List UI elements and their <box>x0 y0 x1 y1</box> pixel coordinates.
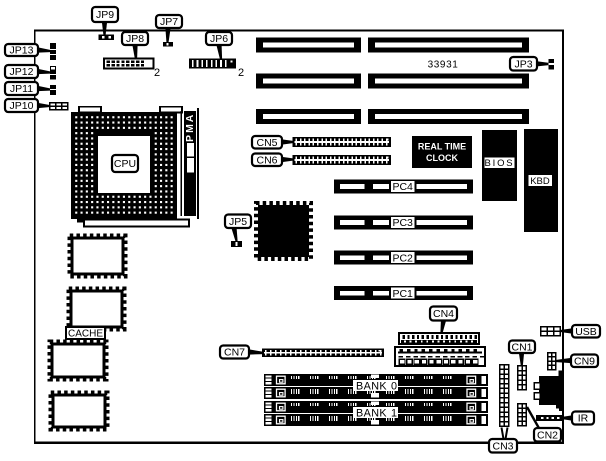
svg-text:KBD: KBD <box>530 176 550 187</box>
svg-text:CN5: CN5 <box>256 137 277 149</box>
svg-text:2: 2 <box>238 67 244 79</box>
svg-text:0: 0 <box>391 381 397 393</box>
svg-text:PC2: PC2 <box>392 252 413 264</box>
svg-text:M: M <box>184 124 196 133</box>
svg-text:CPU: CPU <box>114 158 136 170</box>
svg-text:PC4: PC4 <box>392 181 413 193</box>
svg-text:USB: USB <box>575 326 597 338</box>
svg-text:REAL TIME: REAL TIME <box>418 142 466 152</box>
svg-text:JP7: JP7 <box>160 16 178 28</box>
svg-text:PC1: PC1 <box>392 288 413 300</box>
svg-text:JP5: JP5 <box>229 216 247 228</box>
svg-text:CN4: CN4 <box>433 308 454 320</box>
svg-text:BIOS: BIOS <box>485 158 515 169</box>
svg-text:CACHE: CACHE <box>68 329 103 340</box>
svg-text:CN2: CN2 <box>537 429 558 441</box>
svg-text:BANK: BANK <box>356 408 387 420</box>
svg-text:CLOCK: CLOCK <box>426 153 458 163</box>
svg-text:JP9: JP9 <box>96 9 114 21</box>
svg-text:2: 2 <box>154 67 160 79</box>
svg-text:JP13: JP13 <box>10 45 34 57</box>
svg-text:BANK: BANK <box>356 381 387 393</box>
svg-text:33931: 33931 <box>428 59 459 70</box>
svg-text:CN3: CN3 <box>492 440 513 452</box>
svg-text:JP11: JP11 <box>10 83 33 95</box>
svg-text:CN1: CN1 <box>511 341 532 353</box>
svg-text:JP12: JP12 <box>10 66 34 78</box>
svg-text:IR: IR <box>578 413 589 425</box>
svg-text:CN9: CN9 <box>574 355 595 367</box>
svg-text:JP3: JP3 <box>514 58 532 70</box>
svg-text:JP6: JP6 <box>210 33 228 45</box>
svg-text:CN6: CN6 <box>256 154 277 166</box>
svg-text:P: P <box>184 135 196 142</box>
svg-text:PC3: PC3 <box>392 217 413 229</box>
svg-text:JP8: JP8 <box>126 33 144 45</box>
svg-text:1: 1 <box>391 408 397 420</box>
svg-text:JP10: JP10 <box>10 100 34 112</box>
svg-text:A: A <box>184 114 196 122</box>
svg-text:CN7: CN7 <box>224 347 245 359</box>
